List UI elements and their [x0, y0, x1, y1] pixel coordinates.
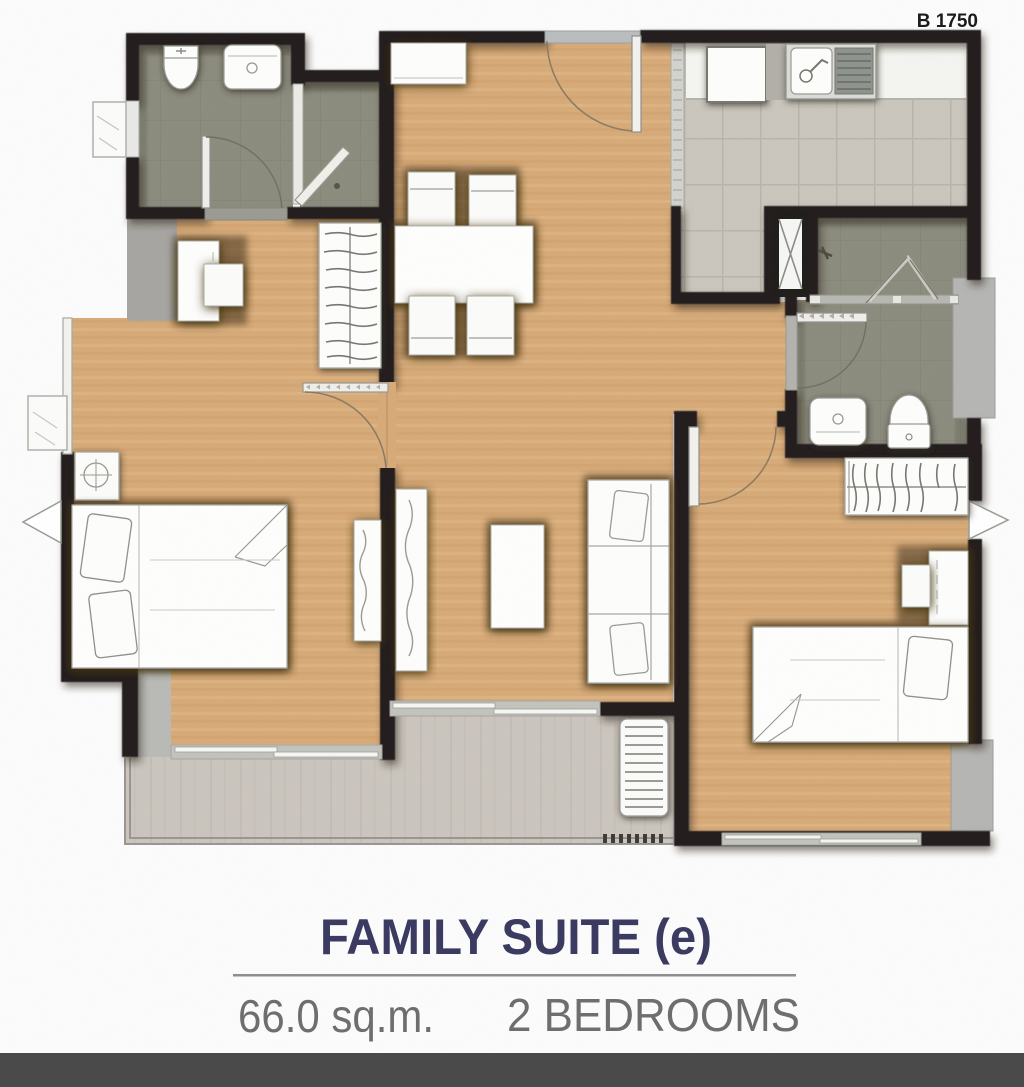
svg-text:B 1750: B 1750	[917, 11, 978, 32]
svg-text:66.0 sq.m.: 66.0 sq.m.	[238, 990, 434, 1042]
svg-text:2 BEDROOMS: 2 BEDROOMS	[507, 989, 800, 1041]
svg-text:FAMILY SUITE (e): FAMILY SUITE (e)	[320, 909, 712, 965]
